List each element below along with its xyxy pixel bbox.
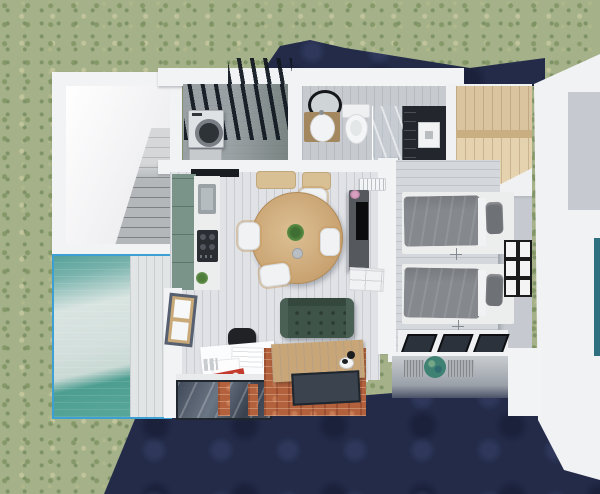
cat	[338, 350, 356, 370]
brick-mullion	[218, 382, 230, 416]
sofa-arm	[280, 298, 288, 338]
washer-controls	[192, 113, 202, 116]
pergola-bathroom-wall	[288, 76, 302, 168]
pergola-slats-overhang	[228, 58, 292, 84]
hob-dials	[200, 255, 215, 258]
shower-drain	[425, 131, 433, 139]
table-plant	[287, 224, 304, 241]
desk-bottles	[203, 358, 218, 371]
sideboard	[348, 267, 384, 292]
shower-closet	[402, 106, 448, 162]
tv-unit	[349, 190, 369, 272]
sofa-back	[286, 298, 348, 306]
bedroom-skylight	[398, 330, 508, 354]
bed-duvet	[404, 195, 481, 246]
lounger	[404, 360, 424, 377]
wardrobe	[456, 86, 532, 132]
terrace-east-wall	[508, 348, 542, 416]
bed-pillow	[485, 202, 503, 235]
window-wood-inner	[168, 296, 195, 344]
pool	[52, 254, 172, 419]
sink-basin	[201, 188, 213, 210]
terrace-table	[424, 356, 446, 378]
gas-hob	[197, 230, 218, 262]
burner	[209, 244, 215, 250]
pool-glint	[54, 256, 130, 417]
washer-door	[195, 119, 223, 147]
skylight-pane	[400, 334, 437, 354]
bed-duvet	[404, 267, 481, 318]
sofa-arm	[346, 298, 354, 338]
cat-patch	[342, 359, 348, 364]
kitchen-counter	[194, 176, 220, 290]
ceiling-fan	[450, 248, 462, 260]
picture-frame	[504, 278, 518, 297]
window-pane	[171, 321, 189, 341]
cat-head	[347, 351, 355, 359]
lower-terrace	[392, 356, 518, 398]
right-edge-pool-strip	[594, 238, 600, 356]
picture-frame	[504, 259, 518, 278]
kitchen-plant	[196, 272, 208, 284]
wardrobe-shelf-edge	[456, 130, 532, 138]
bathroom-vanity	[304, 112, 340, 142]
burner	[200, 244, 206, 250]
dining-chair	[320, 228, 340, 256]
bench-glass-inset	[291, 370, 361, 406]
picture-frame	[518, 278, 532, 297]
toilet-seat	[350, 120, 362, 136]
shower-glass-screen	[372, 106, 403, 162]
floor-plan-render	[0, 0, 600, 494]
shower-shelves	[404, 112, 416, 158]
dining-chair	[259, 262, 292, 288]
dining-chair	[238, 222, 260, 250]
shower-unit	[418, 122, 440, 148]
bed-sheet	[478, 270, 486, 316]
flower-vase	[350, 190, 360, 199]
picture-frame	[518, 240, 532, 259]
tv-screen	[356, 202, 368, 240]
burner	[200, 234, 206, 240]
picture-frame	[504, 240, 518, 259]
bed-pillow	[485, 274, 503, 307]
skylight-pane	[472, 334, 509, 354]
brick-mullion	[248, 384, 258, 416]
burner	[209, 234, 215, 240]
bathroom-basin	[310, 114, 335, 142]
sofa	[280, 298, 354, 338]
window-pane	[173, 299, 191, 319]
table-cup	[292, 248, 303, 259]
skylight-pane	[436, 334, 473, 354]
bathroom-faucet	[319, 110, 324, 115]
right-wall-shade	[568, 92, 600, 210]
lounger	[448, 360, 474, 377]
bedroom-floor	[396, 160, 500, 354]
picture-frame	[518, 259, 532, 278]
kitchen-sink	[198, 184, 216, 214]
kitchen-cabinets	[172, 174, 196, 290]
window-frame	[164, 293, 197, 348]
washing-machine	[188, 110, 224, 148]
bench-cushion	[256, 171, 296, 189]
